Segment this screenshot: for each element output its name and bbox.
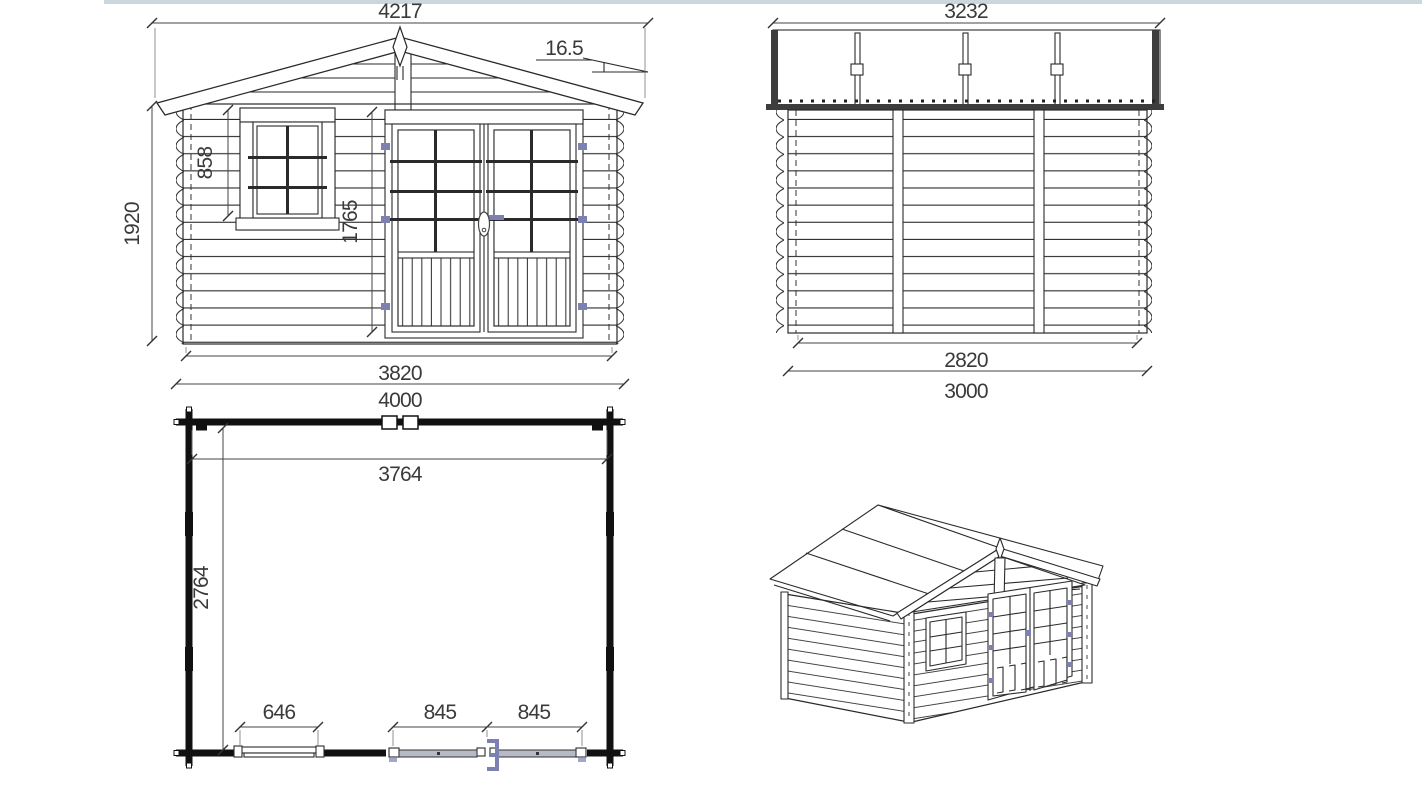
plan-hinge-mark	[578, 757, 586, 762]
door-hinge-icon	[381, 216, 390, 223]
dim-window-opening: 646	[235, 701, 323, 746]
side-roof-band	[766, 30, 1164, 110]
beam-socket	[403, 416, 418, 429]
dim-door-leaf-left: 845	[388, 701, 492, 746]
wall-connector	[185, 647, 193, 671]
dim-roof-overall-depth: 3232	[768, 0, 1165, 28]
side-wall	[776, 110, 1152, 333]
wall-batten	[893, 110, 903, 333]
gable-center-post	[395, 52, 411, 110]
plan-window	[234, 744, 324, 762]
top-edge-strip	[104, 0, 1422, 4]
technical-drawing-sheet: 16.5 4217 1920 858	[0, 0, 1422, 800]
drawing-canvas: 16.5 4217 1920 858	[0, 0, 1422, 800]
window-bar-2	[248, 186, 327, 189]
plan-door-jamb	[576, 748, 586, 757]
window-sill	[236, 218, 339, 230]
dim-label-wall-height: 1920	[121, 202, 144, 246]
dim-inner-depth: 2764	[190, 423, 228, 755]
log-ends-left	[776, 110, 784, 333]
front-elevation-view: 16.5 4217 1920 858	[121, 0, 653, 412]
dim-label-roof-overall-depth: 3232	[944, 0, 988, 23]
front-window	[236, 108, 339, 230]
dim-label-wall-depth: 2820	[944, 349, 988, 372]
roof-end-post-left	[771, 30, 778, 106]
side-elevation-view: 3232 2820 3000	[766, 0, 1165, 403]
dim-label-inner-depth: 2764	[190, 565, 213, 610]
door-slat-panel-left	[398, 258, 474, 326]
door-slat-panel-right	[494, 258, 570, 326]
dim-wall-height: 1920	[121, 101, 157, 346]
dim-label-window-opening: 646	[263, 701, 296, 724]
wall-connector	[606, 647, 614, 671]
plan-hinge-mark	[389, 757, 397, 762]
door-hinge-icon	[381, 143, 390, 150]
beam-socket	[382, 416, 397, 429]
dim-overall-width: 4000	[171, 379, 629, 412]
wall-clip	[196, 426, 207, 431]
front-doors	[381, 110, 587, 338]
dim-label-inner-width: 3764	[378, 463, 423, 486]
door-leaf-left	[390, 124, 482, 332]
dim-label-roof-overall-width: 4217	[378, 0, 422, 23]
persp-side-wall	[781, 592, 908, 722]
door-hinge-icon	[381, 303, 390, 310]
dim-door-leaf-right: 845	[487, 701, 587, 746]
door-header	[385, 110, 583, 124]
plan-door-jamb	[389, 748, 399, 757]
dim-label-overall-width: 4000	[378, 389, 422, 412]
window-muntin	[286, 126, 289, 214]
wall-connector	[185, 512, 193, 536]
dim-wall-width: 3820	[181, 347, 617, 385]
wall-clip	[592, 426, 603, 431]
door-hinge-icon	[578, 216, 587, 223]
window-head	[240, 108, 335, 122]
door-hinge-icon	[578, 143, 587, 150]
roof-end-post-right	[1152, 30, 1159, 106]
dim-inner-width: 3764	[187, 430, 612, 486]
dim-label-window-height: 858	[194, 147, 217, 180]
door-hinge-icon	[578, 303, 587, 310]
eave-bar	[766, 104, 1164, 110]
log-ends-left	[176, 104, 184, 344]
persp-window	[926, 612, 966, 671]
wall-connector	[606, 512, 614, 536]
corner-notches	[174, 407, 625, 768]
roof-pitch-annotation: 16.5	[536, 37, 648, 72]
dim-label-wall-width: 3820	[378, 362, 422, 385]
log-ends-right	[616, 104, 624, 344]
window-bar-1	[248, 156, 327, 159]
dim-label-door-height: 1765	[339, 200, 362, 244]
dim-label-roof-pitch: 16.5	[545, 37, 583, 60]
dim-label-door-leaf-right: 845	[518, 701, 551, 724]
dim-wall-depth: 2820	[793, 335, 1142, 372]
wall-batten	[1034, 110, 1044, 333]
dim-label-overall-depth: 3000	[944, 380, 988, 403]
door-handle-plate	[479, 212, 490, 236]
dim-label-door-leaf-left: 845	[424, 701, 457, 724]
door-leaf-right	[486, 124, 578, 332]
log-ends-right	[1144, 110, 1152, 333]
perspective-view	[770, 505, 1103, 723]
floor-plan-view: 3764 2764 646 845	[174, 407, 625, 771]
plan-doors	[386, 739, 587, 771]
corner-logs-near	[904, 610, 914, 723]
corner-logs-back	[781, 592, 788, 699]
persp-doors	[988, 581, 1072, 700]
